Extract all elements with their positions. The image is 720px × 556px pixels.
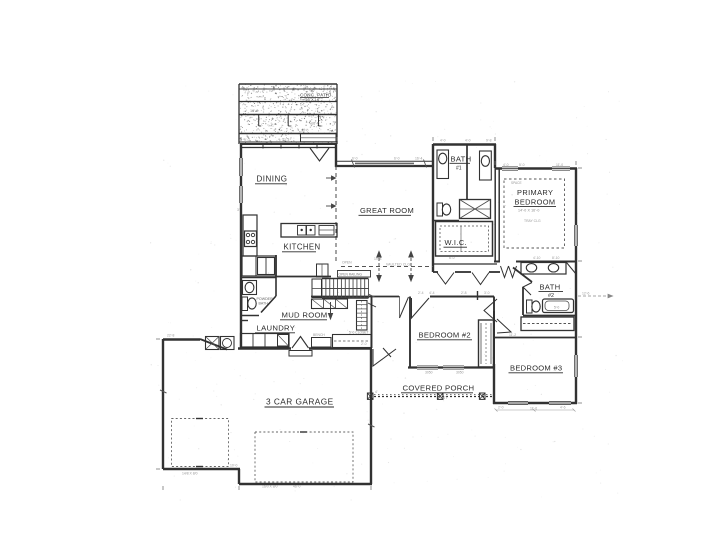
- svg-text:KITCHEN: KITCHEN: [284, 243, 321, 252]
- svg-text:5'-0: 5'-0: [554, 306, 559, 310]
- svg-text:2'-4: 2'-4: [418, 291, 424, 295]
- svg-text:4'-0: 4'-0: [503, 163, 509, 167]
- svg-text:VAULTED CLG.: VAULTED CLG.: [386, 263, 411, 267]
- svg-text:W.I.C.: W.I.C.: [445, 238, 468, 247]
- svg-text:2'-0: 2'-0: [361, 342, 367, 346]
- svg-text:SPACE: SPACE: [511, 181, 522, 185]
- svg-text:11'-2: 11'-2: [509, 333, 516, 337]
- svg-text:9'-8: 9'-8: [486, 139, 492, 143]
- svg-text:46'-0: 46'-0: [293, 485, 301, 489]
- svg-text:16/0 X 8/0: 16/0 X 8/0: [262, 485, 278, 489]
- svg-text:3 CAR GARAGE: 3 CAR GARAGE: [266, 397, 334, 407]
- svg-text:12'-4: 12'-4: [282, 138, 290, 142]
- svg-text:BATH: BATH: [259, 302, 269, 306]
- svg-text:2'-0: 2'-0: [498, 406, 504, 410]
- svg-text:DINING: DINING: [257, 175, 288, 184]
- svg-text:BEDROOM #3: BEDROOM #3: [510, 364, 562, 373]
- svg-text:19'-8: 19'-8: [374, 257, 382, 261]
- svg-text:MUD ROOM: MUD ROOM: [282, 311, 328, 320]
- svg-text:5'-0: 5'-0: [519, 163, 525, 167]
- svg-text:9'-0: 9'-0: [244, 138, 250, 142]
- svg-text:GREAT ROOM: GREAT ROOM: [360, 206, 414, 215]
- svg-text:OPEN RAILING: OPEN RAILING: [339, 272, 363, 276]
- svg-text:4': 4': [375, 390, 378, 394]
- svg-text:3050: 3050: [456, 371, 464, 375]
- svg-text:BENCH: BENCH: [313, 333, 325, 337]
- svg-text:BATH: BATH: [540, 283, 561, 292]
- svg-text:8'-10: 8'-10: [552, 256, 560, 260]
- svg-text:3': 3': [237, 208, 240, 212]
- svg-text:OPEN: OPEN: [342, 261, 352, 265]
- svg-text:22'-8: 22'-8: [167, 334, 175, 338]
- svg-text:16'X14': 16'X14': [305, 97, 320, 102]
- svg-text:4'-10: 4'-10: [533, 256, 541, 260]
- svg-text:2'-8: 2'-8: [461, 291, 467, 295]
- svg-text:BATH: BATH: [451, 155, 472, 164]
- svg-text:4'-6: 4'-6: [560, 406, 566, 410]
- svg-text:5'-0 CLOSET: 5'-0 CLOSET: [349, 331, 369, 335]
- svg-text:COVERED PORCH: COVERED PORCH: [403, 384, 475, 393]
- svg-text:4'-0: 4'-0: [440, 139, 446, 143]
- svg-text:16'-0: 16'-0: [301, 129, 309, 133]
- svg-text:#2: #2: [548, 293, 554, 299]
- svg-text:4'-4: 4'-4: [429, 291, 435, 295]
- svg-text:14'-0 X 16'-0: 14'-0 X 16'-0: [518, 209, 539, 213]
- svg-text:11'-6: 11'-6: [530, 407, 537, 411]
- svg-text:POWDER: POWDER: [257, 297, 274, 301]
- svg-text:6'-0: 6'-0: [394, 156, 400, 160]
- svg-text:POST: POST: [438, 396, 447, 400]
- svg-text:16'-0: 16'-0: [311, 122, 319, 126]
- svg-text:12'-6: 12'-6: [582, 292, 590, 296]
- svg-text:#1: #1: [456, 166, 462, 172]
- svg-text:BEDROOM #2: BEDROOM #2: [419, 331, 471, 340]
- svg-text:16'-4: 16'-4: [415, 156, 423, 160]
- svg-text:3050: 3050: [425, 371, 433, 375]
- svg-text:PRIMARY: PRIMARY: [517, 188, 553, 197]
- svg-text:11'-0: 11'-0: [556, 163, 563, 167]
- svg-text:6'-0: 6'-0: [352, 156, 358, 160]
- svg-text:TRAY CLG: TRAY CLG: [524, 219, 541, 223]
- svg-text:14/8 X 8/0: 14/8 X 8/0: [182, 472, 198, 476]
- svg-text:10'-8: 10'-8: [250, 109, 258, 113]
- svg-text:LAUNDRY: LAUNDRY: [257, 324, 296, 333]
- svg-text:BEDROOM: BEDROOM: [515, 198, 556, 207]
- svg-text:10'-0: 10'-0: [230, 464, 238, 468]
- svg-text:3'-0: 3'-0: [484, 291, 490, 295]
- svg-text:6'-0: 6'-0: [449, 256, 455, 260]
